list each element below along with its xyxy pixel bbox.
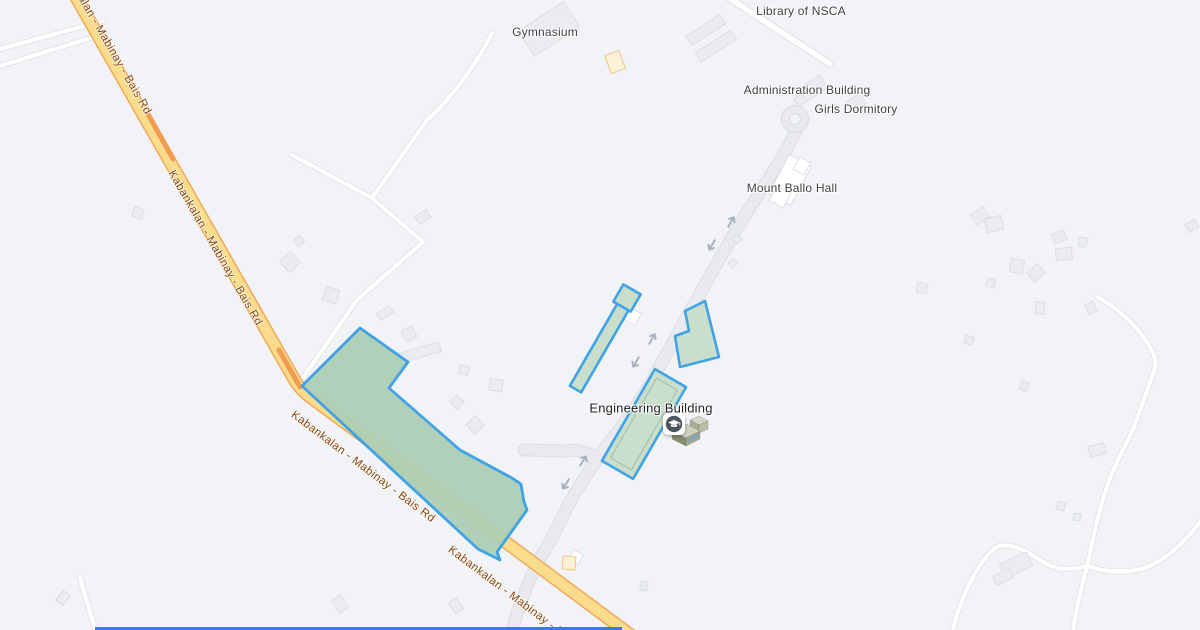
building — [401, 326, 417, 342]
building — [466, 416, 484, 434]
one-way-arrow-icon — [631, 356, 642, 369]
poi-marker-badge[interactable] — [663, 413, 685, 435]
one-way-arrow-icon — [707, 239, 718, 252]
poi-label-engineering[interactable]: Engineering Building — [589, 401, 712, 416]
poi-building — [605, 51, 626, 74]
roundabout-island — [790, 114, 801, 125]
building — [993, 569, 1014, 586]
building — [1027, 264, 1045, 282]
building — [293, 235, 304, 246]
building — [1009, 258, 1024, 274]
one-way-arrow-icon — [560, 478, 571, 491]
map-canvas[interactable]: Library of NSCA Gymnasium Administration… — [0, 0, 1200, 630]
one-way-arrow-icon — [646, 333, 657, 346]
graduation-cap-icon — [663, 413, 685, 435]
poi-label-mount-ballo-hall[interactable]: Mount Ballo Hall — [747, 181, 838, 195]
poi-label-administration[interactable]: Administration Building — [744, 83, 871, 97]
building — [415, 210, 431, 225]
minor-roads — [0, 0, 1200, 630]
poi-label-girls-dormitory[interactable]: Girls Dormitory — [815, 102, 898, 116]
map-layers — [0, 0, 1200, 630]
building — [279, 251, 300, 272]
building — [986, 278, 996, 288]
minor-road — [1087, 522, 1200, 572]
building — [331, 595, 348, 614]
building — [1019, 380, 1030, 391]
building — [984, 215, 1004, 232]
building — [450, 395, 464, 409]
building — [1035, 302, 1045, 315]
building — [1055, 247, 1072, 261]
building — [458, 364, 469, 375]
building — [728, 258, 738, 268]
poi-building — [562, 556, 576, 570]
building — [1056, 501, 1066, 511]
building — [56, 591, 71, 606]
building — [1051, 230, 1067, 244]
building — [1185, 219, 1199, 232]
building — [1084, 301, 1097, 315]
building — [489, 378, 504, 392]
building — [1078, 237, 1088, 247]
building — [449, 598, 464, 614]
building — [132, 207, 145, 220]
building — [322, 286, 340, 304]
building — [1073, 513, 1081, 521]
building — [377, 306, 394, 321]
building — [964, 335, 974, 345]
building — [916, 282, 928, 294]
highlighted-building[interactable] — [570, 298, 632, 393]
highlighted-building[interactable] — [675, 301, 719, 367]
building — [640, 581, 648, 591]
building — [1088, 443, 1106, 458]
poi-label-library[interactable]: Library of NSCA — [756, 4, 846, 18]
poi-label-gymnasium[interactable]: Gymnasium — [512, 25, 578, 39]
